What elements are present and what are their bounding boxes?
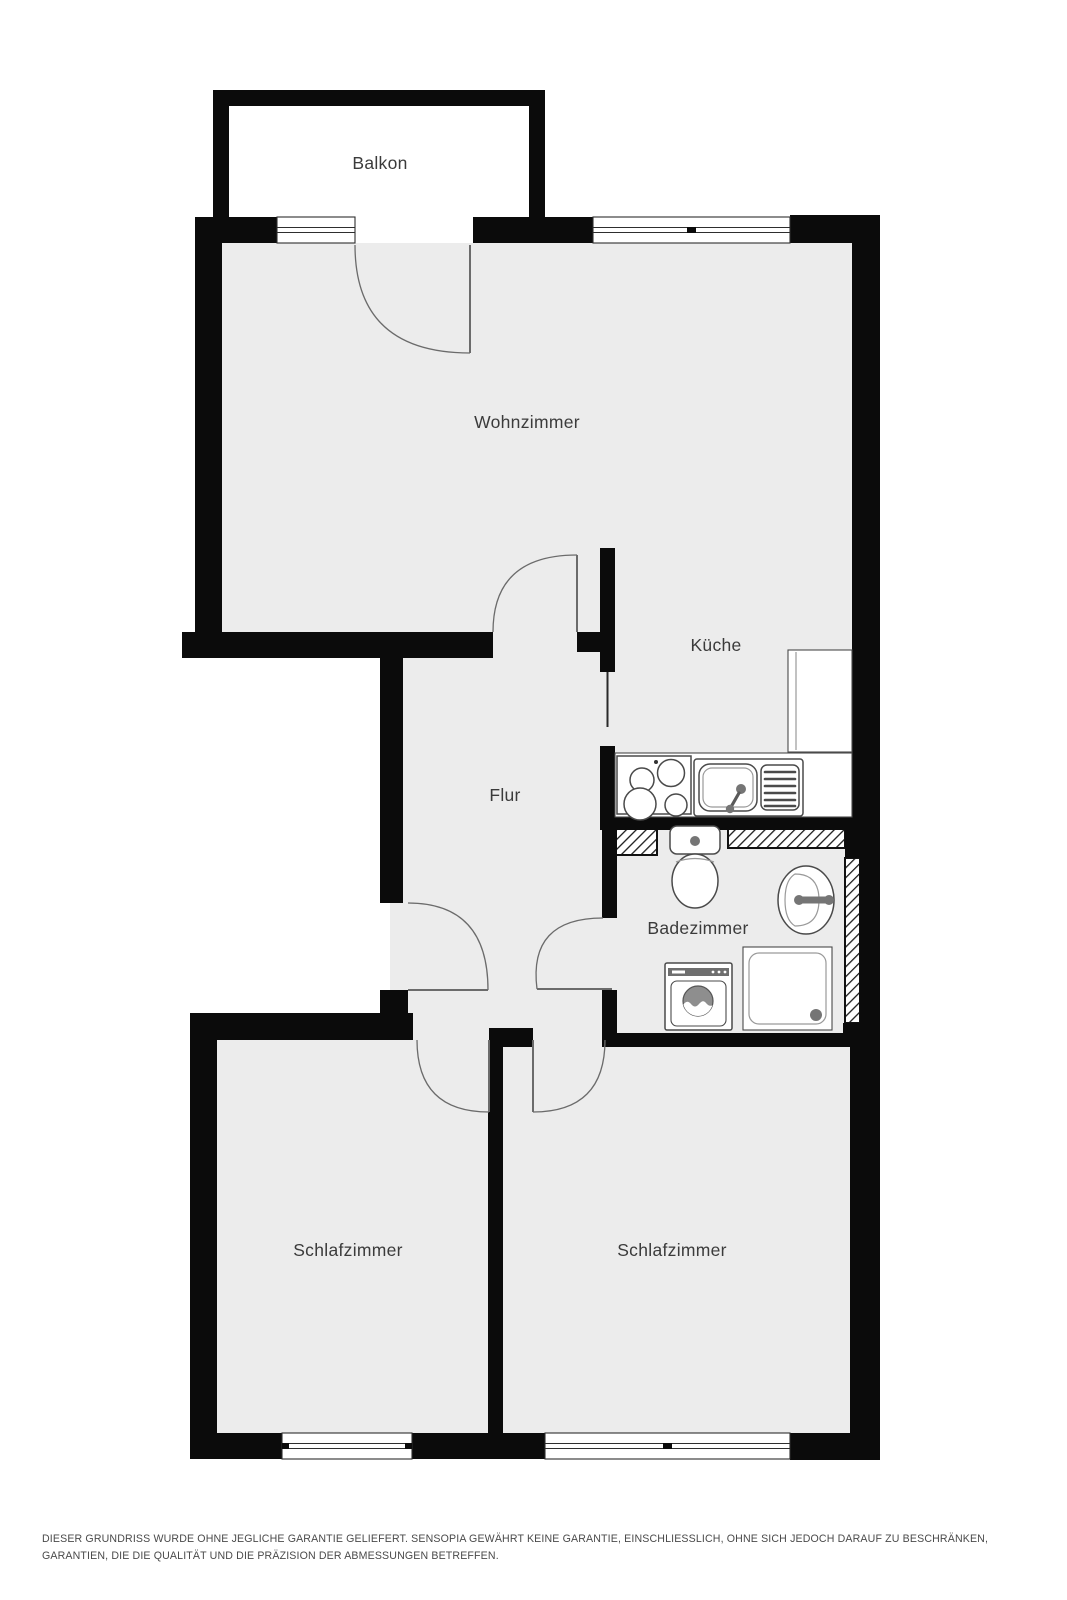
wall-segment	[602, 1033, 880, 1047]
wall-segment	[213, 90, 229, 230]
bath-sink	[778, 866, 834, 934]
wall-segment	[602, 830, 617, 918]
shower	[743, 947, 832, 1030]
floor-hallway	[390, 633, 617, 1040]
wall-segment	[852, 215, 880, 830]
wall-segment	[182, 632, 493, 658]
wall-segment	[850, 1033, 880, 1459]
window	[593, 217, 790, 243]
toilet	[670, 826, 720, 908]
wall-segment	[412, 1433, 545, 1459]
room-label-schlafzimmer-left: Schlafzimmer	[293, 1240, 403, 1260]
wall-segment	[845, 830, 860, 858]
room-label-kueche: Küche	[690, 635, 741, 655]
wall-segment	[790, 1433, 880, 1460]
window	[545, 1433, 790, 1459]
wall-segment	[488, 1040, 503, 1433]
room-label-wohnzimmer: Wohnzimmer	[474, 412, 580, 432]
wall-segment	[473, 217, 593, 243]
wall-segment	[860, 830, 880, 1033]
room-label-badezimmer: Badezimmer	[647, 918, 748, 938]
wall-segment	[600, 548, 615, 672]
window	[282, 1433, 412, 1459]
wall-segment	[195, 217, 222, 658]
wall-segment	[190, 1013, 217, 1459]
wall-segment	[190, 1433, 282, 1459]
disclaimer-text: DIESER GRUNDRISS WURDE OHNE JEGLICHE GAR…	[42, 1531, 1044, 1566]
floor-bedroom-right	[503, 1040, 850, 1433]
stove	[617, 756, 691, 820]
hatched-wall-segment	[613, 828, 657, 855]
fridge	[788, 650, 852, 752]
shower-drain	[810, 1009, 822, 1021]
wall-segment	[577, 632, 600, 652]
window	[277, 217, 355, 243]
floorplan-page: Balkon Wohnzimmer Küche Flur Badezimmer …	[0, 0, 1067, 1600]
wall-segment	[213, 90, 545, 106]
hatched-wall-segment	[728, 828, 845, 848]
wall-segment	[190, 1013, 413, 1040]
wall-segment	[529, 90, 545, 222]
stove-knob	[654, 760, 658, 764]
wall-segment	[380, 658, 403, 903]
room-label-schlafzimmer-right: Schlafzimmer	[617, 1240, 727, 1260]
washing-machine	[665, 963, 732, 1030]
floorplan-drawing: Balkon Wohnzimmer Küche Flur Badezimmer …	[0, 0, 1067, 1600]
hatched-wall-segment	[845, 858, 860, 1023]
floor-livingroom-kitchen	[222, 243, 852, 633]
floor-bedroom-left	[217, 1040, 488, 1433]
room-label-balkon: Balkon	[352, 153, 407, 173]
room-label-flur: Flur	[489, 785, 520, 805]
kitchen-sink	[694, 759, 803, 816]
